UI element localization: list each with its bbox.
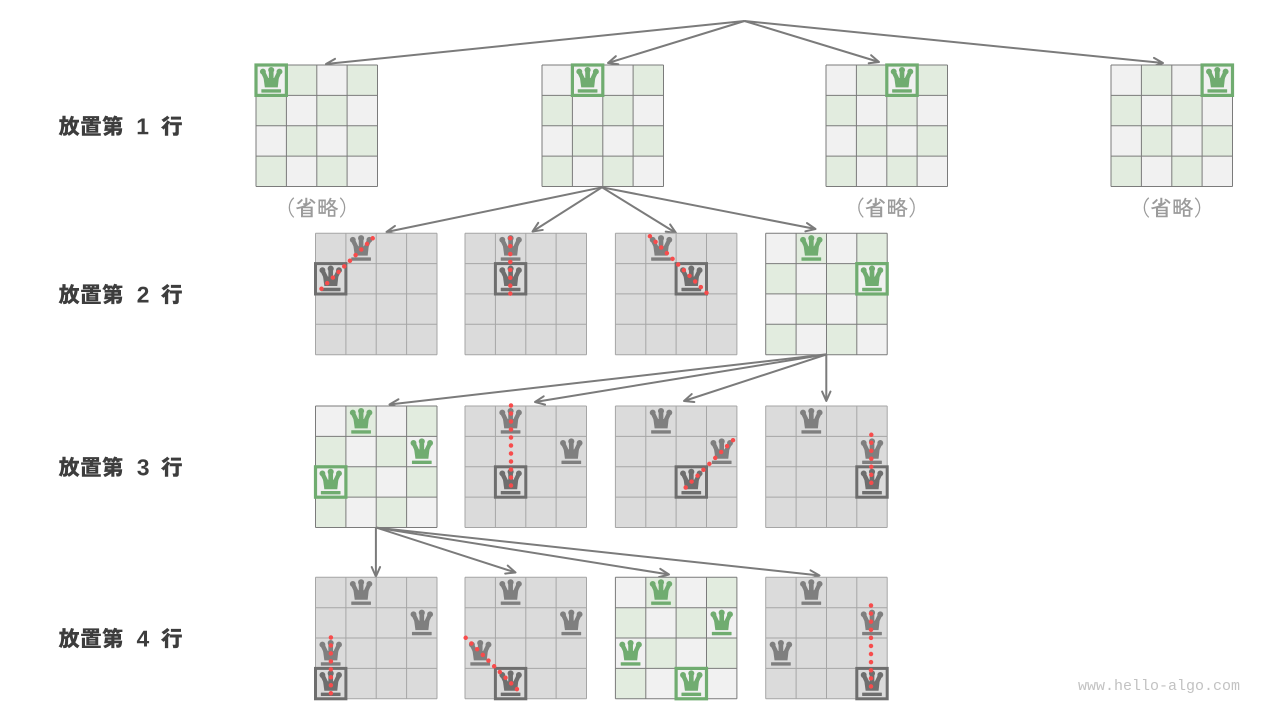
svg-text:www.hello-algo.com: www.hello-algo.com bbox=[1078, 678, 1240, 695]
